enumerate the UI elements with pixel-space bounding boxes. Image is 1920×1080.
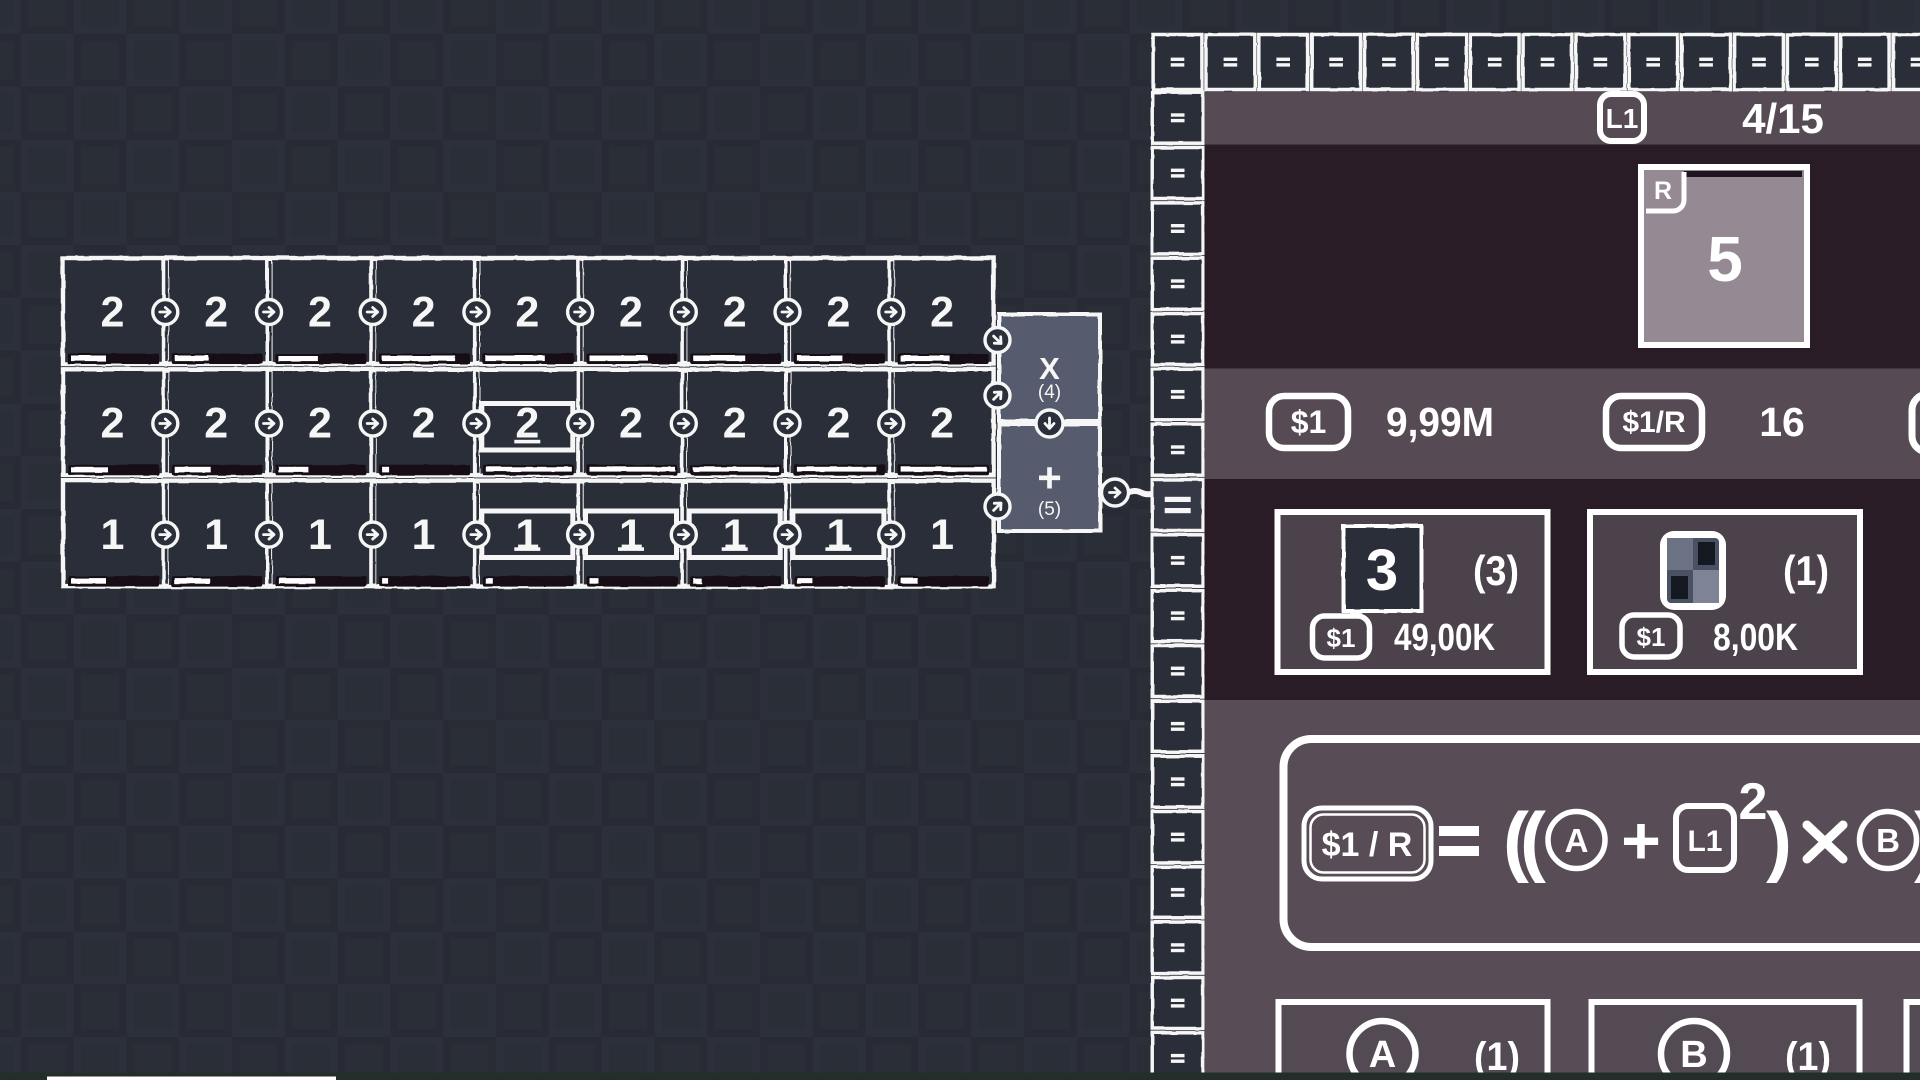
svg-text:+: + xyxy=(1037,454,1062,501)
svg-text:2: 2 xyxy=(619,288,643,336)
svg-text:2: 2 xyxy=(826,288,850,336)
svg-text:+: + xyxy=(1621,803,1661,879)
svg-text:1: 1 xyxy=(412,511,436,559)
svg-text:A: A xyxy=(1369,1034,1396,1076)
svg-text:2: 2 xyxy=(515,288,539,336)
svg-text:2: 2 xyxy=(412,288,436,336)
svg-text:2: 2 xyxy=(723,288,747,336)
svg-text:(1): (1) xyxy=(1474,1035,1520,1079)
svg-text:1: 1 xyxy=(515,511,539,559)
svg-text:A: A xyxy=(1565,822,1589,859)
svg-text:B: B xyxy=(1680,1034,1707,1076)
svg-text:1: 1 xyxy=(204,511,228,559)
svg-text:2: 2 xyxy=(308,288,332,336)
svg-text:$1: $1 xyxy=(1637,622,1666,652)
svg-text:(3): (3) xyxy=(1473,547,1519,594)
svg-text:): ) xyxy=(1766,796,1792,884)
svg-text:9,99M: 9,99M xyxy=(1386,399,1494,445)
svg-text:(1): (1) xyxy=(1783,547,1829,594)
svg-text:): ) xyxy=(1914,796,1920,884)
svg-text:(1): (1) xyxy=(1785,1035,1831,1079)
svg-text:1: 1 xyxy=(101,511,125,559)
svg-text:2: 2 xyxy=(930,288,954,336)
svg-text:2: 2 xyxy=(515,400,539,448)
svg-text:2: 2 xyxy=(930,400,954,448)
svg-text:X: X xyxy=(1039,351,1060,386)
svg-text:L1: L1 xyxy=(1687,825,1722,858)
svg-text:2: 2 xyxy=(101,400,125,448)
svg-text:49,00K: 49,00K xyxy=(1394,617,1495,659)
svg-text:L1: L1 xyxy=(1606,103,1639,134)
svg-text:$1: $1 xyxy=(1327,623,1356,653)
svg-text:2: 2 xyxy=(412,400,436,448)
svg-text:2: 2 xyxy=(826,400,850,448)
svg-text:2: 2 xyxy=(1739,773,1768,831)
svg-text:1: 1 xyxy=(308,511,332,559)
svg-text:5: 5 xyxy=(1707,223,1743,295)
svg-text:16: 16 xyxy=(1759,399,1805,445)
svg-text:1: 1 xyxy=(930,511,954,559)
svg-text:3: 3 xyxy=(1366,538,1398,603)
svg-text:(4): (4) xyxy=(1038,382,1061,403)
svg-text:(5): (5) xyxy=(1038,499,1061,520)
svg-text:4/15: 4/15 xyxy=(1742,95,1824,142)
svg-text:2: 2 xyxy=(204,400,228,448)
svg-text:2: 2 xyxy=(101,288,125,336)
svg-text:$1: $1 xyxy=(1291,404,1327,440)
svg-text:$1 / R: $1 / R xyxy=(1322,826,1413,864)
svg-text:2: 2 xyxy=(723,400,747,448)
svg-text:1: 1 xyxy=(723,511,747,559)
svg-text:$1/R: $1/R xyxy=(1622,406,1686,439)
svg-text:8,00K: 8,00K xyxy=(1713,617,1798,659)
svg-text:2: 2 xyxy=(619,400,643,448)
svg-text:1: 1 xyxy=(826,511,850,559)
svg-text:R: R xyxy=(1654,177,1672,205)
svg-text:2: 2 xyxy=(308,400,332,448)
svg-text:1: 1 xyxy=(619,511,643,559)
svg-text:B: B xyxy=(1876,822,1900,859)
svg-text:2: 2 xyxy=(204,288,228,336)
